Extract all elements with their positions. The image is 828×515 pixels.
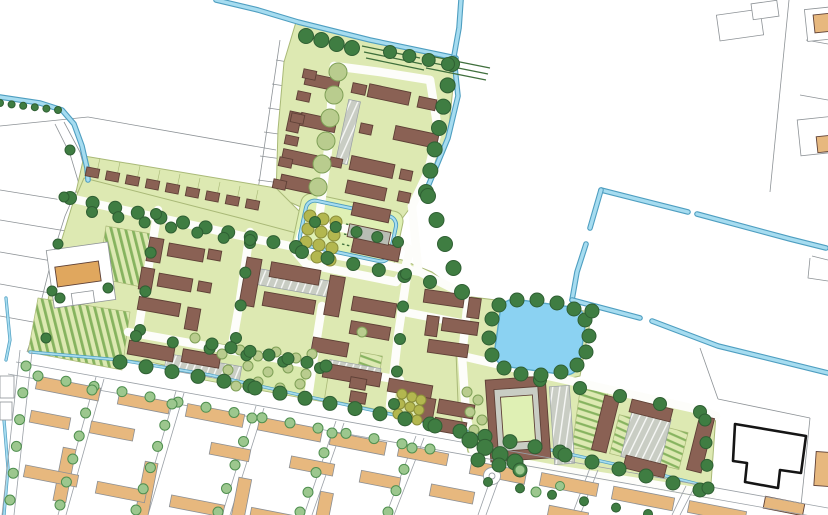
tree (701, 459, 713, 471)
existing-tree (21, 361, 31, 371)
tree (432, 121, 447, 136)
tree (0, 100, 4, 107)
existing-tree (33, 371, 43, 381)
existing-tree (222, 484, 232, 494)
building (245, 199, 259, 210)
tree (582, 329, 596, 343)
existing-tree (341, 428, 351, 438)
tree (282, 353, 294, 365)
existing-tree (303, 487, 313, 497)
tree (612, 462, 626, 476)
existing-tree (230, 460, 240, 470)
tree (455, 285, 470, 300)
tree (436, 99, 451, 114)
tree (372, 264, 385, 277)
tree (206, 338, 218, 350)
existing-tree (87, 385, 97, 395)
tree (139, 217, 150, 228)
existing-tree (397, 439, 407, 449)
tree (263, 367, 273, 377)
orchard-tree (313, 239, 325, 251)
tree (190, 333, 200, 343)
tree (429, 213, 444, 228)
tree (423, 163, 438, 178)
tree (267, 236, 280, 249)
existing-tree (11, 441, 21, 451)
building-outline (751, 0, 779, 19)
tree (585, 304, 599, 318)
tree (401, 269, 412, 280)
existing-tree (399, 464, 409, 474)
tree (462, 432, 478, 448)
building (165, 183, 179, 194)
building (814, 451, 828, 486)
building-outline (0, 376, 14, 398)
tree (471, 453, 485, 467)
tree (317, 132, 335, 150)
orchard-tree (414, 405, 424, 415)
existing-tree (8, 468, 18, 478)
building (185, 187, 199, 198)
tree (438, 237, 453, 252)
tree (550, 296, 564, 310)
tree (398, 412, 412, 426)
existing-tree (319, 448, 329, 458)
building (225, 195, 239, 206)
masterplan-canvas (0, 0, 828, 515)
tree (59, 192, 69, 202)
tree (248, 381, 262, 395)
tree (53, 239, 63, 249)
tree (329, 63, 347, 81)
tree (151, 209, 162, 220)
tree (614, 390, 627, 403)
tree (428, 419, 442, 433)
tree (492, 458, 506, 472)
tree (309, 178, 327, 196)
existing-tree (145, 463, 155, 473)
existing-tree (311, 468, 321, 478)
tree (422, 54, 435, 67)
building (399, 169, 413, 181)
tree (534, 368, 548, 382)
existing-tree (229, 408, 239, 418)
tree (191, 369, 205, 383)
tree (314, 33, 329, 48)
existing-tree (313, 423, 323, 433)
existing-tree (55, 500, 65, 510)
tree (223, 365, 233, 375)
existing-tree (285, 418, 295, 428)
tree (55, 293, 65, 303)
tree (321, 252, 334, 265)
tree (666, 476, 680, 490)
tree (484, 478, 493, 487)
tree (421, 189, 436, 204)
tree (325, 86, 343, 104)
tree (492, 298, 506, 312)
tree (31, 104, 38, 111)
tree (477, 415, 487, 425)
existing-tree (74, 431, 84, 441)
tree (323, 396, 337, 410)
tree (140, 286, 151, 297)
street (412, 206, 418, 268)
tree (528, 440, 542, 454)
tree (699, 414, 711, 426)
existing-tree (295, 507, 305, 515)
tree (145, 247, 156, 258)
tree (43, 105, 50, 112)
tree (570, 358, 584, 372)
tree (497, 361, 511, 375)
existing-tree (383, 507, 393, 515)
building (349, 377, 367, 391)
building (359, 123, 373, 135)
tree (313, 155, 331, 173)
tree (329, 37, 344, 52)
existing-tree (153, 441, 163, 451)
tree (65, 145, 75, 155)
tree (357, 327, 367, 337)
tree (462, 387, 472, 397)
tree (485, 312, 499, 326)
tree (393, 237, 404, 248)
existing-tree (257, 413, 267, 423)
tree (240, 267, 251, 278)
tree (165, 365, 179, 379)
building (425, 315, 440, 336)
orchard-tree (407, 392, 417, 402)
existing-tree (81, 408, 91, 418)
tree (87, 207, 98, 218)
existing-tree (213, 507, 223, 515)
tree (348, 402, 362, 416)
tree (424, 276, 437, 289)
tree (296, 246, 309, 259)
tree (398, 301, 409, 312)
existing-tree (15, 415, 25, 425)
existing-tree (201, 402, 211, 412)
tree (427, 142, 442, 157)
tree (567, 302, 581, 316)
tree (321, 109, 339, 127)
tree (295, 379, 305, 389)
existing-tree (247, 413, 257, 423)
tree (440, 78, 455, 93)
tree (373, 407, 387, 421)
tree (167, 337, 178, 348)
tree (330, 222, 341, 233)
building (813, 13, 828, 33)
orchard-tree (397, 389, 407, 399)
existing-tree (117, 387, 127, 397)
tree (347, 258, 360, 271)
tree (654, 398, 667, 411)
tree (41, 333, 51, 343)
tree (244, 345, 256, 357)
existing-tree (556, 482, 565, 491)
tree (558, 448, 572, 462)
building (816, 135, 828, 152)
tree (103, 283, 113, 293)
tree (580, 497, 589, 506)
tree (530, 293, 544, 307)
existing-tree (425, 444, 435, 454)
tree (389, 399, 400, 410)
tree (139, 360, 153, 374)
tree (482, 331, 496, 345)
tree (113, 212, 124, 223)
existing-tree (138, 484, 148, 494)
tree (299, 29, 314, 44)
existing-tree (531, 487, 541, 497)
tree (384, 46, 397, 59)
tree (351, 227, 362, 238)
tree (485, 348, 499, 362)
tree (465, 407, 475, 417)
tree (8, 101, 15, 108)
tree (554, 365, 568, 379)
tree (166, 222, 177, 233)
tree (442, 58, 455, 71)
tree (263, 349, 275, 361)
existing-tree (61, 477, 71, 487)
tree (131, 331, 142, 342)
tree (218, 232, 229, 243)
orchard-tree (315, 226, 327, 238)
tree (700, 437, 712, 449)
tree (225, 342, 237, 354)
existing-tree (407, 443, 417, 453)
tree (245, 235, 256, 246)
building (85, 167, 99, 178)
tree (403, 50, 416, 63)
building (105, 171, 119, 182)
tree (702, 482, 714, 494)
tree (217, 374, 231, 388)
existing-tree (131, 505, 141, 515)
existing-tree (239, 437, 249, 447)
tree (644, 510, 653, 515)
tree (310, 217, 321, 228)
tree (579, 345, 593, 359)
tree (585, 455, 599, 469)
building (145, 179, 159, 190)
tree (510, 293, 524, 307)
existing-tree (5, 495, 15, 505)
tree (516, 484, 525, 493)
tree (231, 381, 241, 391)
tree (235, 300, 246, 311)
building (205, 191, 219, 202)
tree (473, 395, 483, 405)
tree (301, 369, 311, 379)
tree (298, 391, 312, 405)
tree (639, 469, 653, 483)
tree (113, 355, 127, 369)
tree (548, 490, 557, 499)
existing-tree (391, 486, 401, 496)
tree (345, 41, 360, 56)
orchard-tree (405, 402, 415, 412)
existing-tree (369, 434, 379, 444)
tree (612, 503, 621, 512)
existing-tree (327, 428, 337, 438)
tree (47, 286, 57, 296)
tree (177, 216, 190, 229)
building (397, 191, 411, 203)
existing-tree (515, 465, 525, 475)
existing-tree (145, 392, 155, 402)
building (125, 175, 139, 186)
existing-tree (160, 420, 170, 430)
tree (395, 334, 406, 345)
tree (446, 261, 461, 276)
existing-tree (18, 388, 28, 398)
tree (243, 361, 253, 371)
existing-tree (68, 454, 78, 464)
building (197, 281, 212, 293)
tree (301, 356, 313, 368)
tree (55, 107, 62, 114)
tree (20, 102, 27, 109)
building (207, 249, 222, 261)
tree (320, 360, 332, 372)
masterplan-map (0, 0, 828, 515)
existing-tree (167, 399, 177, 409)
tree (192, 227, 203, 238)
tree (574, 382, 587, 395)
tree (503, 435, 517, 449)
building-outline (0, 402, 12, 420)
tree (514, 367, 528, 381)
orchard-tree (416, 395, 426, 405)
building (467, 297, 482, 318)
existing-tree (61, 376, 71, 386)
building-outline (71, 291, 94, 306)
orchard-tree (412, 415, 422, 425)
tree (392, 366, 403, 377)
tree (273, 386, 287, 400)
tree (372, 232, 383, 243)
